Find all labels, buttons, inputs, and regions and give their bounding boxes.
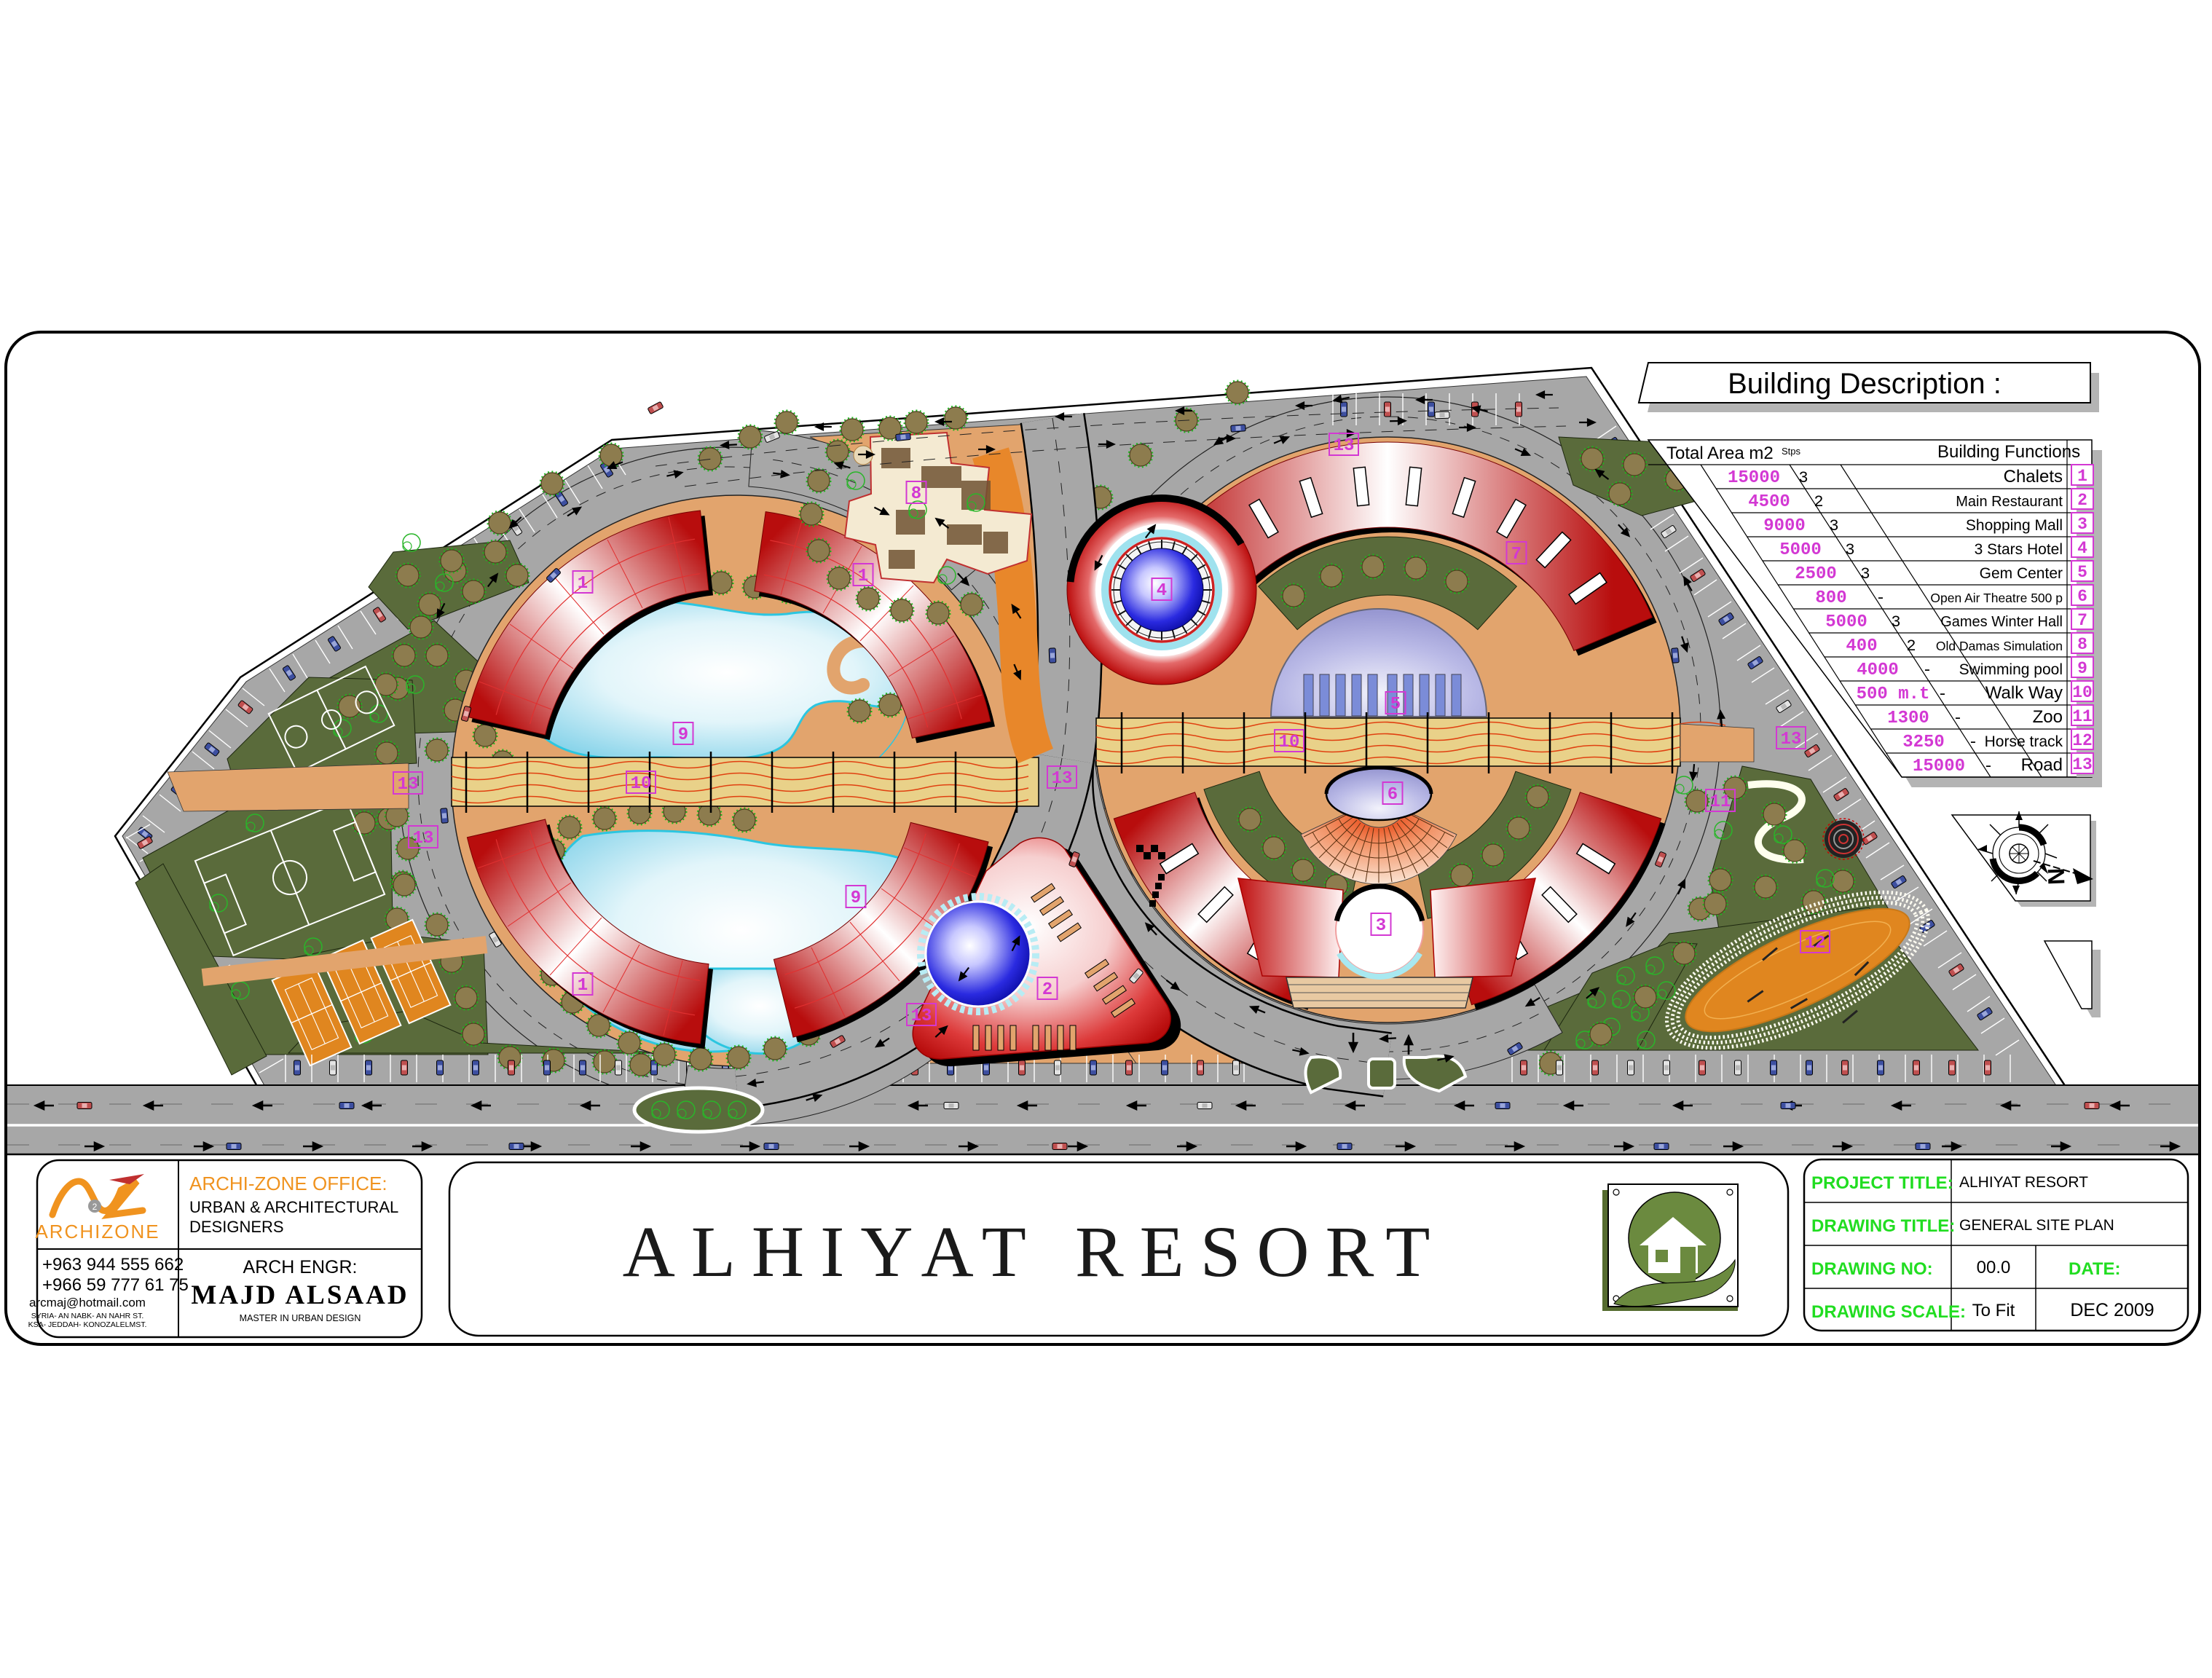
svg-text:Old Damas Simulation: Old Damas Simulation	[1936, 639, 2063, 653]
svg-text:Building Functions: Building Functions	[1937, 442, 2080, 462]
svg-text:5000: 5000	[1825, 612, 1867, 632]
svg-text:13: 13	[1781, 730, 1802, 749]
svg-text:DRAWING NO:: DRAWING NO:	[1811, 1259, 1933, 1279]
svg-text:7: 7	[2077, 611, 2087, 630]
svg-text:1: 1	[578, 574, 588, 594]
svg-text:MASTER IN URBAN DESIGN: MASTER IN URBAN DESIGN	[240, 1313, 361, 1323]
svg-text:3: 3	[1829, 517, 1838, 535]
svg-text:+963 944 555 662: +963 944 555 662	[42, 1255, 184, 1275]
svg-text:-: -	[1876, 589, 1885, 607]
svg-text:Stps: Stps	[1782, 446, 1801, 457]
svg-text:Road: Road	[2021, 755, 2063, 775]
svg-text:DRAWING TITLE:: DRAWING TITLE:	[1811, 1216, 1955, 1236]
svg-text:SYRIA- AN NABK- AN NAHR ST.: SYRIA- AN NABK- AN NAHR ST.	[31, 1312, 144, 1320]
svg-text:DATE:: DATE:	[2069, 1259, 2121, 1279]
svg-text:ALHIYAT RESORT: ALHIYAT RESORT	[623, 1211, 1447, 1292]
svg-text:13: 13	[398, 775, 419, 795]
svg-text:Walk Way: Walk Way	[1985, 683, 2063, 703]
svg-text:DEC 2009: DEC 2009	[2070, 1300, 2154, 1320]
svg-text:8: 8	[911, 484, 921, 504]
svg-text:7: 7	[1511, 545, 1522, 564]
svg-text:4500: 4500	[1748, 492, 1790, 512]
svg-text:00.0: 00.0	[1977, 1258, 2011, 1277]
svg-text:13: 13	[1052, 769, 1073, 789]
svg-text:Shopping Mall: Shopping Mall	[1966, 517, 2063, 534]
svg-text:2: 2	[2077, 491, 2087, 510]
svg-text:URBAN & ARCHITECTURAL: URBAN & ARCHITECTURAL	[189, 1198, 398, 1216]
svg-text:-: -	[1968, 733, 1977, 752]
svg-text:Zoo: Zoo	[2033, 707, 2063, 727]
svg-text:DRAWING SCALE:: DRAWING SCALE:	[1811, 1302, 1966, 1322]
svg-text:15000: 15000	[1913, 757, 1965, 776]
svg-text:9: 9	[2077, 659, 2087, 678]
svg-text:5: 5	[1390, 695, 1401, 714]
svg-text:arcmaj@hotmail.com: arcmaj@hotmail.com	[29, 1296, 146, 1309]
svg-text:3: 3	[1891, 613, 1900, 631]
svg-text:12: 12	[1805, 934, 1826, 953]
svg-text:3: 3	[1376, 916, 1386, 936]
svg-text:9: 9	[851, 889, 861, 908]
svg-text:13: 13	[413, 829, 434, 848]
svg-text:4: 4	[2077, 539, 2087, 558]
svg-text:ARCHIZONE: ARCHIZONE	[35, 1221, 160, 1242]
svg-text:-: -	[1953, 709, 1962, 728]
svg-text:Gem Center: Gem Center	[1980, 565, 2063, 582]
svg-text:-: -	[1937, 685, 1947, 704]
svg-text:Building Description :: Building Description :	[1728, 368, 2002, 400]
svg-text:4: 4	[1157, 581, 1167, 601]
svg-text:1: 1	[578, 976, 588, 996]
svg-text:15000: 15000	[1728, 468, 1780, 488]
svg-text:Swimming pool: Swimming pool	[1959, 661, 2063, 678]
svg-text:3 Stars Hotel: 3 Stars Hotel	[1975, 541, 2063, 558]
svg-text:13: 13	[1334, 436, 1355, 456]
svg-text:12: 12	[2072, 731, 2093, 750]
svg-text:9: 9	[678, 725, 688, 745]
svg-text:KSA- JEDDAH- KONOZALELMST.: KSA- JEDDAH- KONOZALELMST.	[28, 1320, 147, 1329]
svg-text:8: 8	[2077, 635, 2087, 654]
svg-text:3: 3	[1845, 541, 1854, 559]
svg-text:2: 2	[93, 1202, 98, 1212]
svg-text:-: -	[1922, 661, 1932, 680]
svg-text:2: 2	[1042, 980, 1052, 1000]
svg-text:To Fit: To Fit	[1972, 1301, 2015, 1320]
svg-text:500 m.t: 500 m.t	[1857, 685, 1930, 704]
svg-text:6: 6	[1388, 785, 1398, 805]
svg-text:Games Winter Hall: Games Winter Hall	[1940, 614, 2063, 630]
svg-text:Open Air Theatre 500 p: Open Air Theatre 500 p	[1930, 591, 2063, 605]
svg-text:MAJD ALSAAD: MAJD ALSAAD	[191, 1280, 409, 1310]
svg-text:4000: 4000	[1857, 661, 1899, 680]
svg-text:DESIGNERS: DESIGNERS	[189, 1218, 284, 1236]
svg-text:11: 11	[2072, 707, 2093, 726]
svg-text:10: 10	[1279, 733, 1300, 752]
svg-text:ALHIYAT RESORT: ALHIYAT RESORT	[1959, 1174, 2088, 1191]
svg-text:13: 13	[911, 1007, 932, 1026]
svg-text:10: 10	[631, 774, 652, 794]
svg-text:3: 3	[1798, 469, 1808, 487]
svg-text:5: 5	[2077, 563, 2087, 582]
svg-text:2500: 2500	[1795, 564, 1837, 584]
svg-text:Horse track: Horse track	[1985, 733, 2063, 750]
svg-text:10: 10	[2072, 683, 2093, 702]
svg-text:1: 1	[2077, 467, 2087, 486]
svg-text:GENERAL SITE PLAN: GENERAL SITE PLAN	[1959, 1217, 2114, 1234]
svg-text:1: 1	[858, 567, 868, 586]
svg-text:+966 59 777 61 75: +966 59 777 61 75	[42, 1275, 189, 1295]
svg-text:9000: 9000	[1763, 516, 1806, 536]
svg-text:6: 6	[2077, 587, 2087, 606]
svg-text:Total Area m2: Total Area m2	[1666, 444, 1774, 463]
svg-text:2: 2	[1814, 493, 1823, 511]
svg-text:11: 11	[1710, 792, 1731, 812]
svg-text:-: -	[1983, 757, 1993, 776]
svg-text:3: 3	[1860, 565, 1870, 583]
svg-text:Chalets: Chalets	[2004, 467, 2063, 487]
svg-text:800: 800	[1815, 588, 1846, 608]
svg-text:13: 13	[2072, 755, 2093, 774]
svg-text:3: 3	[2077, 515, 2087, 534]
svg-text:400: 400	[1846, 637, 1877, 656]
svg-text:PROJECT TITLE:: PROJECT TITLE:	[1811, 1173, 1953, 1193]
svg-text:5000: 5000	[1779, 540, 1822, 560]
svg-text:3250: 3250	[1902, 733, 1945, 752]
svg-text:2: 2	[1906, 637, 1916, 655]
svg-text:Main Restaurant: Main Restaurant	[1956, 494, 2063, 510]
svg-text:ARCH ENGR:: ARCH ENGR:	[243, 1257, 358, 1277]
svg-text:1300: 1300	[1887, 709, 1929, 728]
svg-text:ARCHI-ZONE OFFICE:: ARCHI-ZONE OFFICE:	[189, 1173, 387, 1194]
